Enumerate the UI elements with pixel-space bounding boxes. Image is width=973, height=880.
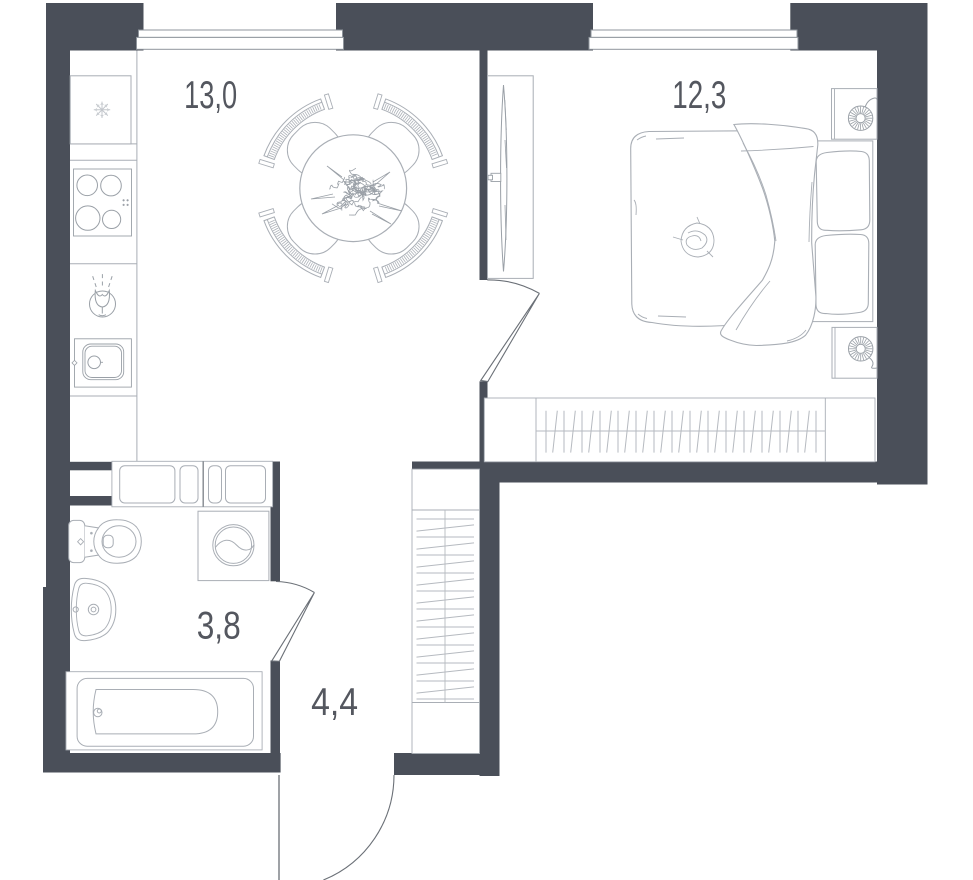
svg-text:3,8: 3,8 <box>197 605 241 648</box>
svg-text:13,0: 13,0 <box>184 74 237 117</box>
svg-text:4,4: 4,4 <box>311 681 358 724</box>
svg-text:12,3: 12,3 <box>672 74 726 117</box>
